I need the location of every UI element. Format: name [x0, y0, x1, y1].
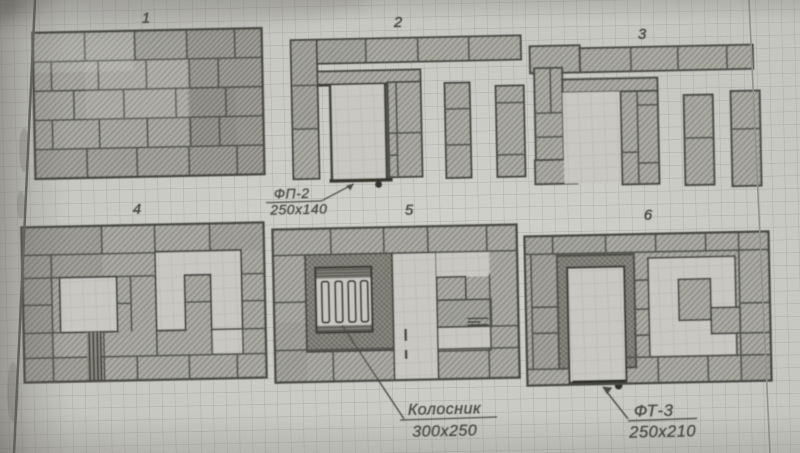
svg-text:6: 6: [644, 207, 653, 224]
svg-text:250x140: 250x140: [269, 200, 328, 217]
svg-text:5: 5: [405, 202, 414, 219]
svg-text:3: 3: [638, 26, 647, 43]
svg-text:ФП-2: ФП-2: [274, 185, 310, 202]
svg-text:4: 4: [133, 201, 142, 218]
